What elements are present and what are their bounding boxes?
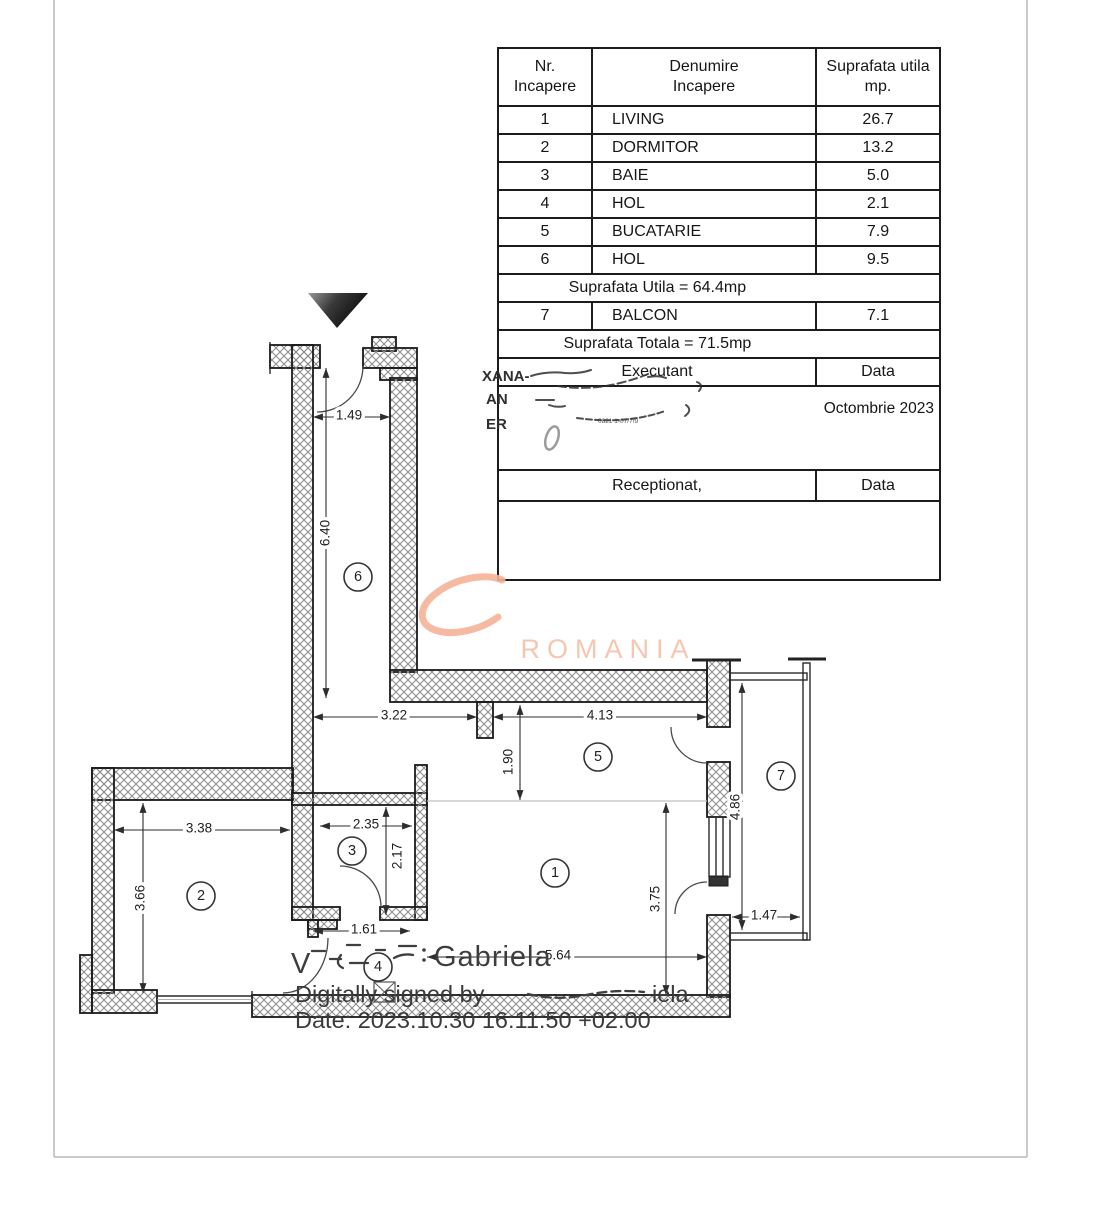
dim-label-kitchen-width: 4.13 bbox=[587, 708, 613, 723]
dim-label-balcony-width: 1.47 bbox=[751, 908, 777, 923]
room-number-dormitor: 2 bbox=[197, 888, 205, 904]
romania-watermark: ROMANIA bbox=[422, 577, 695, 664]
dim-label-entrance-width: 1.49 bbox=[336, 408, 362, 423]
bedroom-window bbox=[157, 991, 252, 1009]
dim-label-bedroom-width: 3.38 bbox=[186, 821, 212, 836]
page-frame bbox=[54, 0, 1027, 1157]
dim-label-bath-depth: 2.17 bbox=[390, 843, 405, 869]
signature-line2-suffix: iela bbox=[652, 981, 690, 1007]
entrance-arrow-icon bbox=[308, 293, 368, 328]
living-window bbox=[709, 817, 730, 877]
kitchen-balcony-door-arc bbox=[671, 727, 707, 763]
room-number-hol6: 6 bbox=[354, 569, 362, 585]
dim-label-hall-length: 6.40 bbox=[318, 520, 333, 546]
living-balcony-door-arc bbox=[675, 882, 707, 914]
dim-label-living-depth: 3.75 bbox=[648, 886, 663, 912]
pen-mark bbox=[543, 425, 562, 452]
dim-label-hol-width: 1.61 bbox=[351, 922, 377, 937]
dim-label-bath-width: 2.35 bbox=[353, 817, 379, 832]
signature-date-line: Date: 2023.10.30 16:11:50 +02:00 bbox=[295, 1007, 651, 1033]
floor-plan-drawing: ROMANIA bbox=[0, 0, 1093, 1211]
signature-name: Gabriela bbox=[434, 941, 552, 973]
stamp-fragment: ER bbox=[486, 416, 507, 433]
logo-swoosh-icon bbox=[422, 577, 502, 633]
digital-signature: V Gabriela Digitally signed by iela Date… bbox=[291, 941, 690, 1033]
executant-stamp-redaction: XANA- AN ER 0821 1-07/7/9 bbox=[482, 368, 701, 451]
scanned-floor-plan-page: { "table": { "header": { "col1_line1": "… bbox=[0, 0, 1093, 1211]
watermark-text: ROMANIA bbox=[520, 634, 695, 664]
signature-line2-prefix: Digitally signed by bbox=[295, 981, 485, 1007]
room-number-living: 1 bbox=[551, 865, 559, 881]
stamp-fragment: XANA- bbox=[482, 368, 530, 385]
stamp-fragment: AN bbox=[486, 391, 508, 408]
dim-label-bedroom-depth: 3.66 bbox=[133, 885, 148, 911]
bathroom-door-arc bbox=[340, 866, 381, 907]
room-number-balcon: 7 bbox=[777, 768, 785, 784]
walls bbox=[80, 337, 730, 1017]
signature-initial: V bbox=[291, 948, 311, 980]
dim-label-hall-width: 3.22 bbox=[381, 708, 407, 723]
dim-label-balcony-length: 4.86 bbox=[728, 794, 743, 820]
dim-label-kitchen-depth: 1.90 bbox=[501, 749, 516, 775]
room-number-baie: 3 bbox=[348, 843, 356, 859]
entrance-door-arc bbox=[317, 366, 363, 412]
room-number-bucatarie: 5 bbox=[594, 749, 602, 765]
room-number-hol4: 4 bbox=[374, 959, 382, 975]
